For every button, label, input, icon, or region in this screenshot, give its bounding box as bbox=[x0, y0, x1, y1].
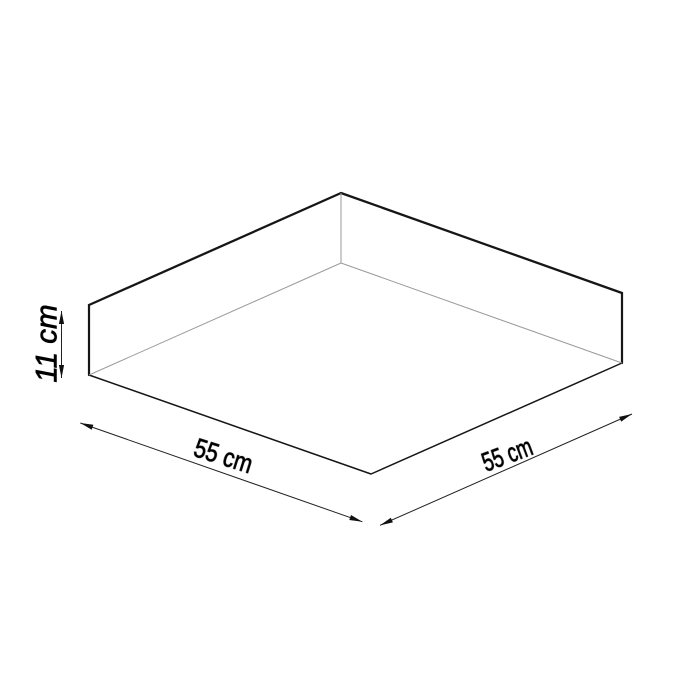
svg-text:11 cm: 11 cm bbox=[30, 304, 63, 382]
svg-text:55 cm: 55 cm bbox=[478, 431, 537, 477]
